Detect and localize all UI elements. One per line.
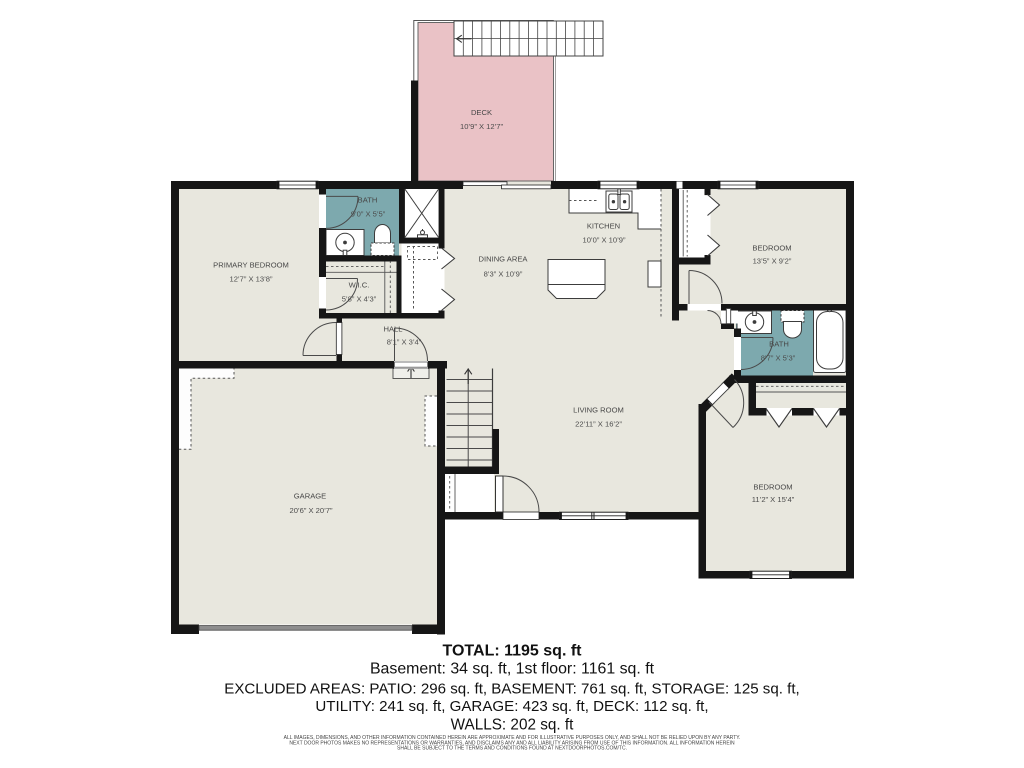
svg-text:8’7” X 5’3”: 8’7” X 5’3” [761,354,796,363]
svg-text:13’5” X 9’2”: 13’5” X 9’2” [753,257,792,266]
svg-text:BEDROOM: BEDROOM [753,483,792,492]
svg-text:SHALL BE SUBJECT TO THE TERMS: SHALL BE SUBJECT TO THE TERMS AND CONDIT… [397,746,627,752]
svg-text:HALL: HALL [384,325,403,334]
svg-text:8’1” X 3’4”: 8’1” X 3’4” [387,338,422,347]
svg-text:12’7” X 13’8”: 12’7” X 13’8” [229,275,273,284]
svg-text:EXCLUDED AREAS: PATIO: 296 sq.: EXCLUDED AREAS: PATIO: 296 sq. ft, BASEM… [224,681,799,698]
svg-text:5’8” X 4’3”: 5’8” X 4’3” [342,295,377,304]
svg-text:BATH: BATH [358,196,378,205]
svg-text:KITCHEN: KITCHEN [587,222,620,231]
svg-text:8’3” X 10’9”: 8’3” X 10’9” [484,270,523,279]
svg-text:10’0” X 10’9”: 10’0” X 10’9” [582,236,626,245]
svg-text:BEDROOM: BEDROOM [752,244,791,253]
svg-text:22’11” X 16’2”: 22’11” X 16’2” [575,420,622,429]
svg-text:TOTAL: 1195 sq. ft: TOTAL: 1195 sq. ft [443,643,583,660]
svg-text:DECK: DECK [471,108,492,117]
svg-text:DINING AREA: DINING AREA [479,255,529,264]
svg-text:GARAGE: GARAGE [294,492,327,501]
svg-text:W.I.C.: W.I.C. [349,281,370,290]
svg-text:10’9” X 12’7”: 10’9” X 12’7” [460,122,504,131]
svg-text:11’2” X 15’4”: 11’2” X 15’4” [752,495,795,504]
svg-text:BATH: BATH [769,340,789,349]
svg-text:WALLS: 202 sq. ft: WALLS: 202 sq. ft [451,717,574,734]
svg-text:9’0” X 5’5”: 9’0” X 5’5” [351,210,386,219]
svg-text:20’6” X 20’7”: 20’6” X 20’7” [289,506,333,515]
svg-text:UTILITY: 241 sq. ft, GARAGE: 4: UTILITY: 241 sq. ft, GARAGE: 423 sq. ft,… [315,698,708,715]
svg-text:LIVING ROOM: LIVING ROOM [573,406,624,415]
svg-text:Basement: 34 sq. ft, 1st floor: Basement: 34 sq. ft, 1st floor: 1161 sq.… [370,661,655,678]
svg-text:PRIMARY BEDROOM: PRIMARY BEDROOM [213,261,289,270]
